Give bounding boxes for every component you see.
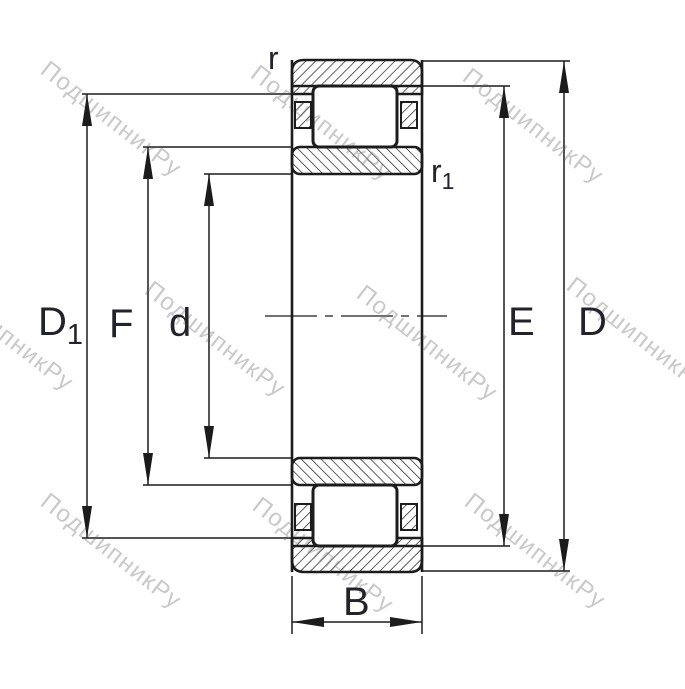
label-chamfer-r: r — [268, 42, 279, 74]
cage-bottom-left — [295, 504, 311, 530]
label-rib-diameter-D1: D1 — [38, 302, 83, 350]
inner-ring-top-section — [292, 147, 422, 174]
roller-bottom — [313, 485, 397, 546]
label-width-B: B — [343, 582, 370, 622]
label-outer-raceway-E: E — [508, 302, 535, 342]
cage-top-left — [295, 102, 311, 128]
label-inner-raceway-F: F — [109, 304, 133, 344]
label-bore-d: d — [169, 303, 191, 343]
cage-bottom-right — [401, 504, 417, 530]
bearing-drawing-page: D1 F d E D B r r1 ПодшипникРу ПодшипникР… — [0, 0, 685, 689]
roller-top — [313, 86, 397, 147]
label-chamfer-r1: r1 — [431, 155, 454, 193]
label-outer-diameter-D: D — [578, 302, 607, 342]
cage-top-right — [401, 102, 417, 128]
inner-ring-bottom-section — [292, 458, 422, 485]
